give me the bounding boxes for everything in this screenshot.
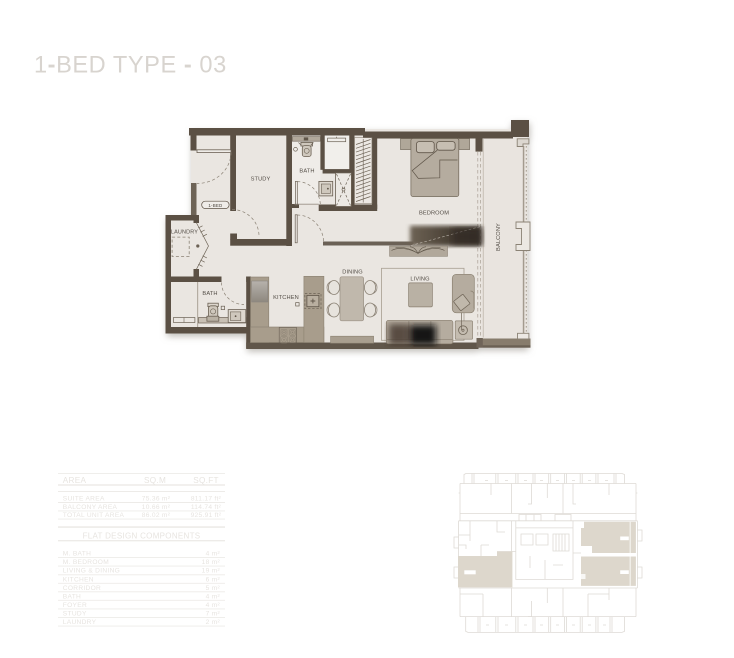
svg-text:KITCHEN: KITCHEN	[273, 295, 299, 301]
svg-text:4 m²: 4 m²	[206, 593, 221, 600]
svg-text:BEDROOM: BEDROOM	[419, 211, 449, 217]
svg-text:7 m²: 7 m²	[206, 611, 221, 618]
svg-text:LAUNDRY: LAUNDRY	[63, 619, 97, 626]
svg-text:FOYER: FOYER	[63, 602, 87, 609]
svg-text:SQ.M: SQ.M	[144, 476, 166, 485]
svg-text:STUDY: STUDY	[251, 177, 271, 183]
svg-text:BALCONY AREA: BALCONY AREA	[63, 504, 118, 511]
svg-text:811.17 ft²: 811.17 ft²	[191, 495, 222, 502]
svg-text:1-BED TYPE - 03: 1-BED TYPE - 03	[34, 53, 227, 79]
svg-text:75.36 m²: 75.36 m²	[142, 495, 171, 502]
svg-text:BATH: BATH	[202, 291, 217, 297]
svg-text:19 m²: 19 m²	[202, 568, 221, 575]
svg-text:1-BED: 1-BED	[208, 203, 223, 208]
svg-text:STUDY: STUDY	[63, 611, 87, 618]
svg-text:BATH: BATH	[299, 169, 314, 175]
svg-text:TOTAL UNIT AREA: TOTAL UNIT AREA	[63, 512, 125, 519]
svg-text:114.74 ft²: 114.74 ft²	[191, 504, 222, 511]
svg-text:CORRIDOR: CORRIDOR	[63, 585, 101, 592]
svg-text:18 m²: 18 m²	[202, 559, 221, 566]
svg-text:DINING: DINING	[342, 269, 363, 275]
svg-text:M. BATH: M. BATH	[63, 551, 91, 558]
svg-text:M. BEDROOM: M. BEDROOM	[63, 559, 109, 566]
svg-text:SQ.FT: SQ.FT	[193, 476, 219, 485]
svg-text:BALCONY: BALCONY	[496, 223, 502, 251]
svg-text:LAUNDRY: LAUNDRY	[171, 230, 198, 236]
svg-text:KITCHEN: KITCHEN	[63, 576, 94, 583]
svg-text:2 m²: 2 m²	[206, 619, 221, 626]
svg-text:925.91 ft²: 925.91 ft²	[191, 512, 222, 519]
svg-text:FLAT DESIGN COMPONENTS: FLAT DESIGN COMPONENTS	[83, 531, 201, 540]
svg-text:86.02 m²: 86.02 m²	[142, 512, 171, 519]
svg-text:5 m²: 5 m²	[206, 585, 221, 592]
svg-text:6 m²: 6 m²	[206, 576, 221, 583]
svg-text:LIVING: LIVING	[410, 276, 429, 282]
svg-text:SUITE AREA: SUITE AREA	[63, 495, 105, 502]
svg-text:LIVING & DINING: LIVING & DINING	[63, 568, 120, 575]
svg-text:BATH: BATH	[63, 593, 81, 600]
svg-text:4 m²: 4 m²	[206, 602, 221, 609]
svg-text:10.66 m²: 10.66 m²	[142, 504, 171, 511]
svg-text:4 m²: 4 m²	[206, 551, 221, 558]
svg-text:AREA: AREA	[63, 476, 87, 485]
